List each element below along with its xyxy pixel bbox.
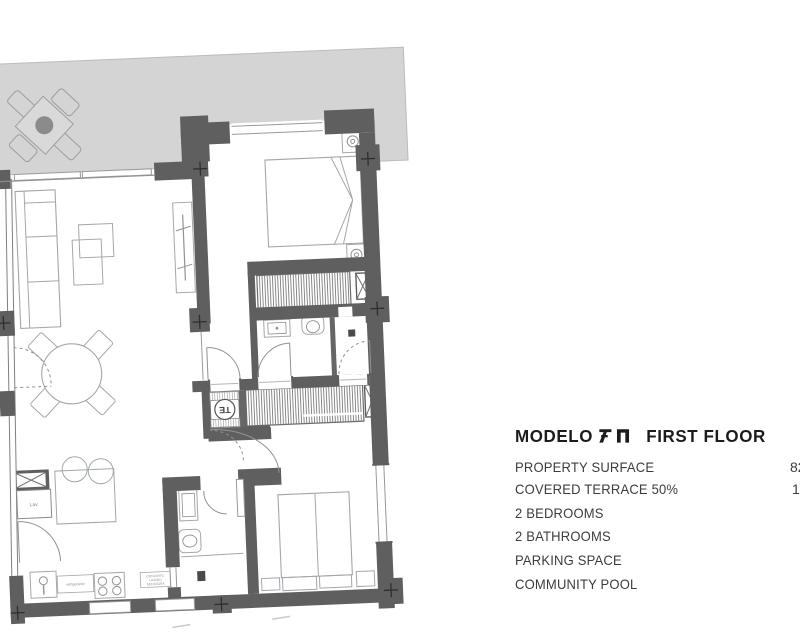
- svg-text:Lav.: Lav.: [30, 502, 39, 508]
- svg-text:TE: TE: [219, 405, 231, 415]
- svg-text:SECADORA: SECADORA: [147, 582, 166, 587]
- svg-text:refrigerador: refrigerador: [66, 582, 86, 587]
